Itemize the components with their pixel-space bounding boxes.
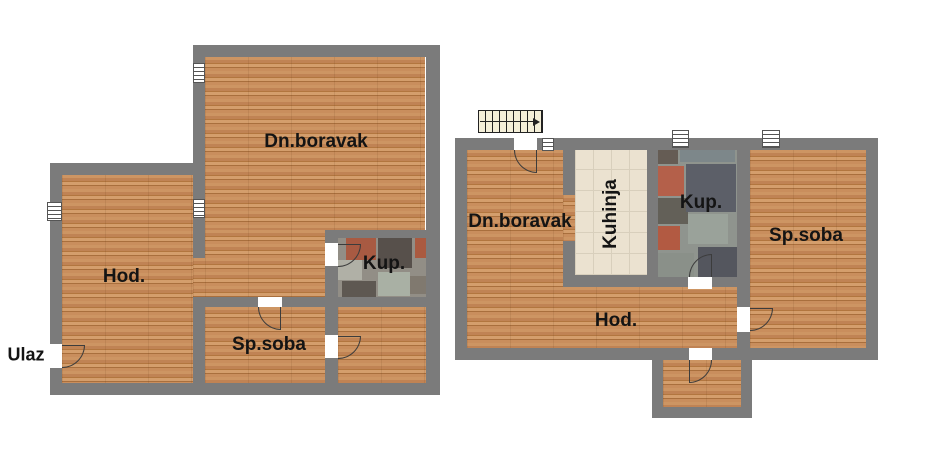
wall	[455, 138, 467, 360]
floor-plan: Dn.boravak Hod. Kup. Sp.soba Ulaz Dn.bor…	[0, 0, 925, 468]
entrance-label: Ulaz	[7, 345, 44, 366]
room-label-living: Dn.boravak	[468, 211, 571, 233]
window-symbol	[762, 130, 780, 148]
wall	[866, 138, 878, 360]
wall	[193, 45, 440, 57]
wall	[325, 230, 440, 238]
room-label-bathroom: Kup.	[363, 253, 405, 275]
door-opening	[258, 297, 282, 307]
room-label-living: Dn.boravak	[264, 131, 367, 153]
room-label-bedroom: Sp.soba	[232, 334, 306, 356]
wall	[50, 163, 205, 175]
wall	[193, 297, 440, 307]
door-opening	[50, 344, 62, 368]
door-opening	[689, 348, 712, 360]
stairs-direction-line	[480, 121, 536, 122]
door-opening	[325, 335, 338, 358]
room-label-kitchen: Kuhinja	[600, 179, 622, 249]
wall	[193, 297, 205, 395]
wall	[563, 150, 575, 195]
wall	[50, 383, 440, 395]
room-label-hallway: Hod.	[103, 266, 145, 288]
door-opening	[514, 137, 537, 150]
window-symbol	[193, 199, 205, 218]
wall	[563, 275, 658, 287]
floor-corridor	[193, 258, 205, 297]
room-label-hallway: Hod.	[595, 310, 637, 332]
wall	[426, 45, 440, 395]
door-opening	[325, 243, 338, 266]
radiator-symbol	[542, 138, 554, 151]
stairs-arrow-icon	[533, 118, 540, 126]
room-label-bathroom: Kup.	[680, 192, 722, 214]
window-symbol	[672, 130, 689, 148]
window-symbol	[193, 63, 205, 83]
wall	[652, 407, 752, 418]
room-label-bedroom: Sp.soba	[769, 225, 843, 247]
wall	[647, 150, 658, 287]
door-opening	[737, 307, 750, 332]
floor-corridor	[205, 230, 325, 297]
door-opening	[688, 277, 712, 289]
window-symbol	[47, 202, 62, 221]
wall	[455, 348, 689, 360]
